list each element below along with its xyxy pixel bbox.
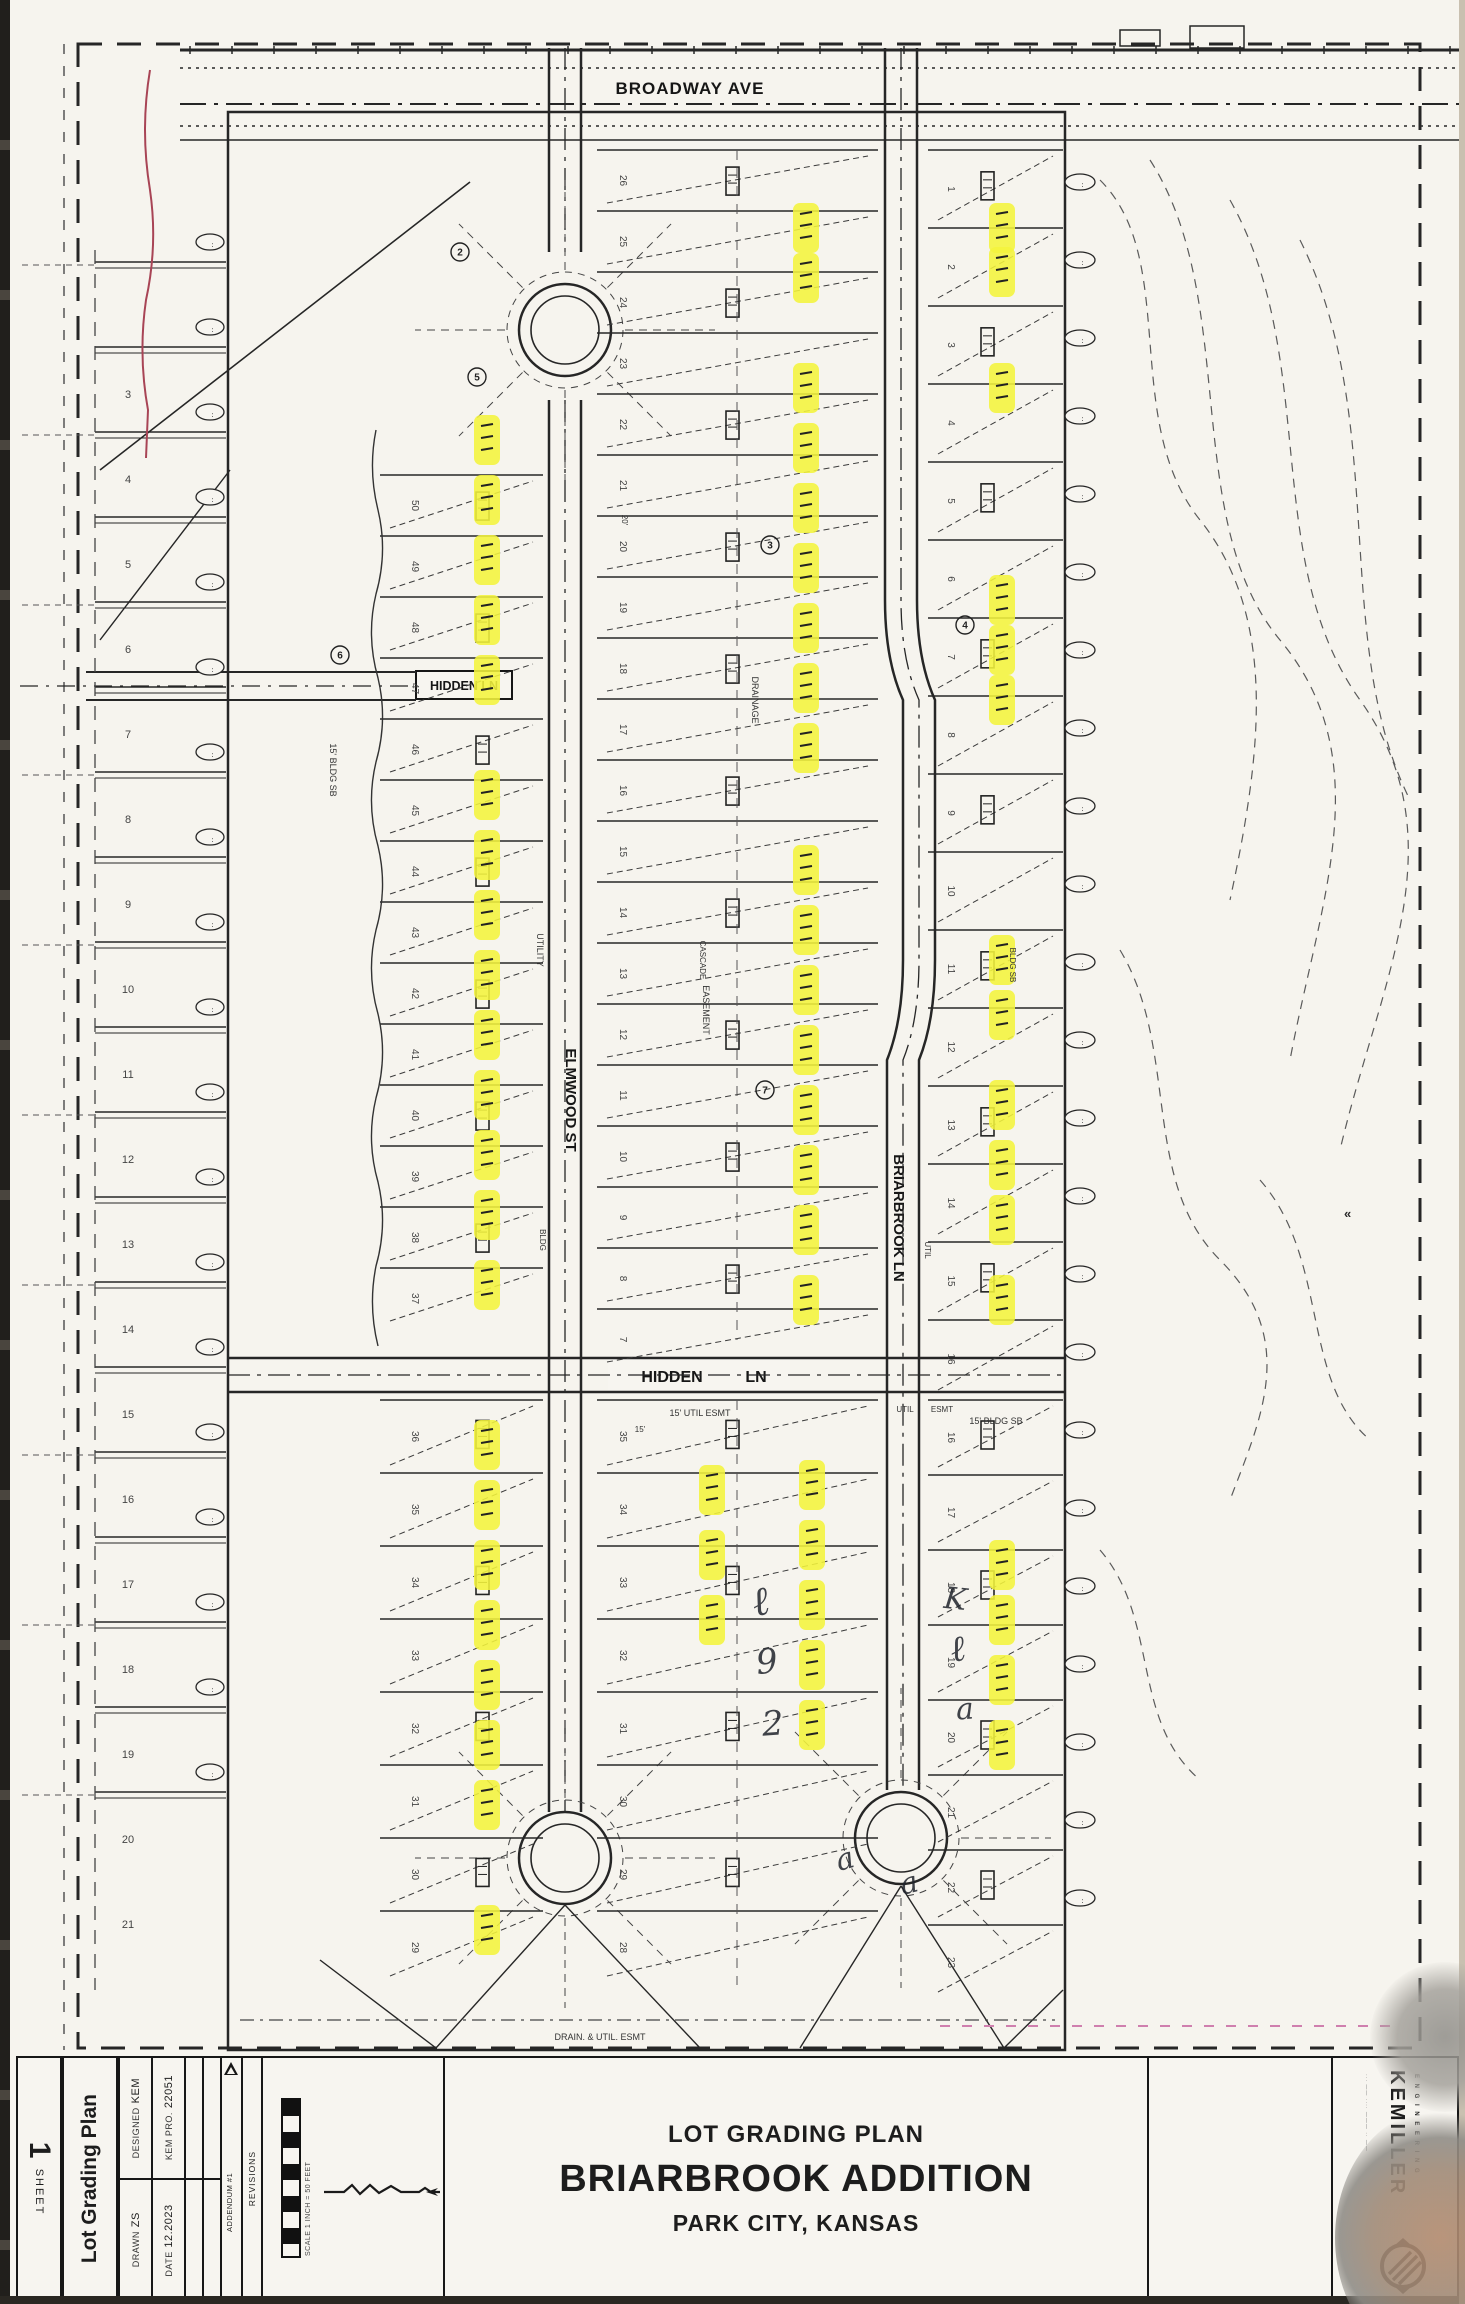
project-label: KEM PRO.: [164, 2113, 174, 2161]
empty-field-cell: [202, 2056, 222, 2180]
tiny-label: ··: [208, 582, 217, 587]
handwritten-pen-mark: a: [955, 1691, 975, 1727]
briarbrook-ln-label: BRIARBROOK LN: [890, 1154, 907, 1282]
contour: [1230, 200, 1408, 1150]
lot-number: 16: [617, 785, 628, 797]
lot-number: 49: [409, 561, 420, 573]
highlight-swatch: [474, 595, 500, 645]
easement-label: 15' BLDG SB: [328, 743, 338, 796]
highlight-swatch: [474, 1660, 500, 1710]
highlight-swatch: [793, 1275, 819, 1325]
lot-number: 18: [617, 663, 628, 675]
cul-de-sac: [531, 1824, 599, 1892]
lot-number: 9: [617, 1215, 628, 1221]
plan-line: [100, 182, 470, 470]
highlight-tag: [793, 1275, 819, 1325]
tiny-label: ··: [1078, 416, 1087, 421]
highlight-tag: [474, 830, 500, 880]
lot-number: 45: [409, 805, 420, 817]
grade-pad: [981, 172, 994, 200]
hidden-ln-mid-label-a: HIDDEN: [641, 1369, 702, 1386]
revision-entry: ADDENDUM #1: [225, 2082, 234, 2232]
contour: [1120, 950, 1267, 1500]
scan-edge-bottom: [0, 2296, 1465, 2304]
cul-de-sac: [519, 1812, 611, 1904]
highlight-tag: [474, 1720, 500, 1770]
highlight-tag: [793, 663, 819, 713]
empty-field-cell: [184, 2056, 204, 2180]
tiny-label: ··: [1078, 1040, 1087, 1045]
easement-label: 20': [620, 515, 629, 526]
lot-number: 4: [945, 420, 956, 426]
cul-de-sac: [519, 284, 611, 376]
highlight-tag: [474, 1780, 500, 1830]
highlight-tag: [474, 1600, 500, 1650]
contour: [1100, 180, 1256, 900]
highlight-swatch: [793, 603, 819, 653]
tiny-label: ··: [1078, 260, 1087, 265]
lot-number: 47: [409, 683, 420, 695]
lot-number: 28: [617, 1942, 628, 1954]
lot-number: 35: [617, 1431, 628, 1443]
highlight-swatch: [989, 1720, 1015, 1770]
contour: [1260, 1180, 1370, 1440]
tiny-label: ··: [208, 327, 217, 332]
radial-lot-line: [607, 1752, 671, 1816]
highlight-swatch: [474, 950, 500, 1000]
highlight-tag: [989, 675, 1015, 725]
lot-number: 44: [409, 866, 420, 878]
highlight-swatch: [474, 415, 500, 465]
easement-label: CASCADE: [698, 941, 707, 980]
cul-de-sac-easement: [507, 272, 623, 388]
adjacent-lot-number: 12: [122, 1154, 134, 1166]
red-pen-line: [142, 70, 153, 458]
highlight-tag: [474, 655, 500, 705]
tiny-label: ··: [208, 1602, 217, 1607]
lot-number: 21: [617, 480, 628, 492]
lot-number: 29: [617, 1869, 628, 1881]
highlight-tag: [474, 1905, 500, 1955]
lot-number: 13: [617, 968, 628, 980]
designed-value: KEM: [130, 2078, 142, 2103]
highlight-tag: [474, 1010, 500, 1060]
lot-number: 2: [945, 264, 956, 270]
highlight-swatch: [474, 535, 500, 585]
lot-number: 22: [617, 419, 628, 431]
revisions-header: REVISIONS: [247, 2151, 257, 2206]
project-title: BRIARBROOK ADDITION: [559, 2158, 1033, 2201]
revision-triangle-inner: [227, 2067, 235, 2074]
easement-label: UTILITY: [535, 933, 545, 967]
highlight-tag: [793, 203, 819, 253]
plan-line: [565, 1905, 700, 2048]
highlight-swatch: [699, 1530, 725, 1580]
highlight-tag: [793, 905, 819, 955]
highlight-swatch: [793, 1205, 819, 1255]
adjacent-lot-number: 7: [125, 729, 131, 741]
highlight-tag: [799, 1460, 825, 1510]
lot-number: 7: [945, 654, 956, 660]
circled-number-text: 4: [962, 621, 968, 632]
highlight-swatch: [474, 770, 500, 820]
highlight-tag: [474, 1540, 500, 1590]
tiny-label: ··: [1078, 1664, 1087, 1669]
highlight-tag: [799, 1520, 825, 1570]
highlight-tag: [989, 1140, 1015, 1190]
subdivision-outline: [228, 112, 1065, 2050]
highlight-swatch: [989, 1140, 1015, 1190]
lot-number: 41: [409, 1049, 420, 1061]
plat-boundary: [64, 44, 1420, 2050]
lot-number: 12: [617, 1029, 628, 1041]
scale-squiggle: [322, 2176, 442, 2206]
highlight-swatch: [474, 1780, 500, 1830]
highlight-swatch: [793, 543, 819, 593]
lot-number: 37: [409, 1293, 420, 1305]
highlight-tag: [793, 253, 819, 303]
adjacent-lot-number: 9: [125, 899, 131, 911]
tiny-label: ··: [208, 1772, 217, 1777]
highlight-tag: [989, 1195, 1015, 1245]
highlight-swatch: [793, 1025, 819, 1075]
highlight-tag: [799, 1700, 825, 1750]
revision-date: 04.17.2024: [225, 2236, 234, 2304]
tiny-label: ··: [208, 497, 217, 502]
tiny-label: ··: [1078, 884, 1087, 889]
grade-pad: [981, 796, 994, 824]
lot-number: 25: [617, 236, 628, 248]
highlight-tag: [989, 575, 1015, 625]
highlight-tag: [793, 483, 819, 533]
highlight-swatch: [699, 1465, 725, 1515]
easement-label: DRAINAGE: [750, 676, 760, 723]
adjacent-lot-number: 13: [122, 1239, 134, 1251]
highlight-swatch: [989, 1195, 1015, 1245]
drawn-cell: DRAWN ZS: [118, 2178, 153, 2302]
roads: [20, 26, 1460, 2008]
highlight-tag: [474, 1070, 500, 1120]
drainage-arrow: [607, 644, 868, 691]
tiny-label: ··: [208, 1177, 217, 1182]
grade-pad: [981, 484, 994, 512]
lot-number: 17: [945, 1507, 956, 1519]
adjacent-lot-number: 18: [122, 1664, 134, 1676]
lot-number: 43: [409, 927, 420, 939]
date-label: DATE: [164, 2251, 174, 2276]
adjacent-lot-number: 10: [122, 984, 134, 996]
highlight-tag: [799, 1580, 825, 1630]
lot-number: 24: [617, 297, 628, 309]
lot-number: 38: [409, 1232, 420, 1244]
lot-number: 19: [617, 602, 628, 614]
handwritten-pen-mark: 2: [761, 1703, 785, 1744]
circled-number-text: 7: [762, 1086, 768, 1097]
project-cell: KEM PRO. 22051: [151, 2056, 186, 2180]
sidebar-title: Lot Grading Plan: [78, 2094, 102, 2263]
lot-number: 15: [945, 1275, 956, 1287]
adjacent-lot-number: 21: [122, 1919, 134, 1931]
highlight-tag: [474, 415, 500, 465]
date-cell: DATE 12.2023: [151, 2178, 186, 2302]
plan-line: [436, 1905, 565, 2048]
lot-lines: [22, 150, 1063, 2048]
highlight-tag: [989, 1595, 1015, 1645]
empty-field-cell: [202, 2178, 222, 2302]
date-value: 12.2023: [163, 2204, 175, 2247]
contour: [1100, 1550, 1200, 1780]
lot-number: 1: [945, 186, 956, 192]
tiny-label: ··: [208, 1092, 217, 1097]
highlight-swatch: [989, 363, 1015, 413]
highlight-swatch: [799, 1640, 825, 1690]
handwritten-pen-mark: 9: [754, 1641, 780, 1683]
tiny-label: ··: [1078, 728, 1087, 733]
briarbrook-edge-e: [917, 48, 935, 1790]
adjacent-lot-number: 3: [125, 389, 131, 401]
highlight-tag: [699, 1530, 725, 1580]
highlight-swatch: [799, 1580, 825, 1630]
highlight-tag: [989, 1080, 1015, 1130]
cul-de-sac-easement: [507, 1800, 623, 1916]
lot-number: 12: [945, 1041, 956, 1053]
highlight-swatch: [799, 1520, 825, 1570]
tiny-label: ··: [208, 1432, 217, 1437]
plan-type-label: LOT GRADING PLAN: [668, 2121, 924, 2149]
highlight-swatch: [793, 1085, 819, 1135]
revision-entry-cell: ADDENDUM #1 04.17.2024: [220, 2056, 243, 2302]
tiny-label: ··: [1078, 806, 1087, 811]
adjacent-lot-number: 14: [122, 1324, 134, 1336]
highlight-swatch: [793, 363, 819, 413]
contour: [1150, 160, 1335, 1060]
lot-number: 8: [945, 732, 956, 738]
radial-lot-line: [795, 1880, 859, 1944]
highlight-tag: [793, 1025, 819, 1075]
highlight-swatch: [989, 1655, 1015, 1705]
lot-number: 3: [945, 342, 956, 348]
highlight-swatch: [474, 1720, 500, 1770]
lot-number: 16: [945, 1432, 956, 1444]
highlight-tag: [989, 363, 1015, 413]
edge-mark: «: [1344, 1206, 1351, 1221]
revisions-header-cell: REVISIONS: [241, 2056, 263, 2302]
lot-number: 6: [945, 576, 956, 582]
tiny-label: ··: [1078, 182, 1087, 187]
highlight-tag: [699, 1595, 725, 1645]
seal-panel: [1147, 2056, 1333, 2302]
easement-label: BLDG: [538, 1229, 547, 1251]
highlight-swatch: [474, 1600, 500, 1650]
scan-edge-left: [0, 0, 10, 2304]
plat-dashed-boundary: [78, 44, 1420, 2048]
tiny-label: ··: [1078, 962, 1087, 967]
highlight-tag: [989, 1275, 1015, 1325]
lot-number: 9: [945, 810, 956, 816]
highlight-swatch: [989, 203, 1015, 253]
tiny-label: ··: [1078, 1430, 1087, 1435]
lot-number: 32: [617, 1650, 628, 1662]
lot-number: 21: [945, 1807, 956, 1819]
highlight-tag: [474, 770, 500, 820]
highlight-swatch: [793, 905, 819, 955]
lot-number: 46: [409, 744, 420, 756]
lot-number: 48: [409, 622, 420, 634]
highlight-swatch: [474, 1010, 500, 1060]
lot-number: 33: [409, 1650, 420, 1662]
lot-number: 23: [617, 358, 628, 370]
easement-label: 15' BLDG SB: [969, 1416, 1022, 1426]
lot-number: 8: [617, 1276, 628, 1282]
highlight-swatch: [474, 655, 500, 705]
grade-pad: [981, 328, 994, 356]
tiny-label: ··: [1078, 1586, 1087, 1591]
cul-de-sac: [531, 296, 599, 364]
highlight-swatch: [474, 830, 500, 880]
lot-number: 50: [409, 500, 420, 512]
lot-number: 15: [617, 846, 628, 858]
highlight-swatch: [989, 625, 1015, 675]
drawn-label: DRAWN: [131, 2231, 141, 2267]
highlight-swatch: [699, 1595, 725, 1645]
highlight-tag: [989, 1540, 1015, 1590]
easement-label: DRAIN. & UTIL. ESMT: [554, 2032, 646, 2042]
broadway-ave-label: BROADWAY AVE: [616, 79, 765, 98]
highlight-tag: [793, 603, 819, 653]
highlight-tag: [793, 1145, 819, 1195]
tiny-label: ··: [208, 1687, 217, 1692]
highlight-swatch: [989, 990, 1015, 1040]
lot-number: 16: [945, 1353, 956, 1365]
lot-number: 30: [409, 1869, 420, 1881]
project-value: 22051: [163, 2075, 175, 2108]
highlight-tag: [989, 1720, 1015, 1770]
highlight-swatch: [793, 483, 819, 533]
lot-number: 10: [945, 885, 956, 897]
easement-label: BLDG SB: [1008, 948, 1017, 983]
lot-number: 30: [617, 1796, 628, 1808]
hidden-ln-mid-label-b: LN: [745, 1369, 766, 1386]
lot-number: 42: [409, 988, 420, 1000]
lot-number: 39: [409, 1171, 420, 1183]
highlight-tag: [474, 1480, 500, 1530]
tiny-label: ··: [1078, 494, 1087, 499]
highlight-swatch: [799, 1700, 825, 1750]
lot-number: 29: [409, 1942, 420, 1954]
tiny-label: ··: [208, 1347, 217, 1352]
highlight-tag: [474, 1130, 500, 1180]
highlight-swatch: [793, 423, 819, 473]
sheet-number-cell: SHEET 1: [16, 2056, 62, 2302]
lot-number: 36: [409, 1431, 420, 1443]
lot-number: 11: [617, 1090, 628, 1101]
radial-lot-line: [607, 372, 671, 436]
tiny-label: ··: [208, 922, 217, 927]
radial-lot-line: [607, 224, 671, 288]
tiny-label: ··: [208, 1517, 217, 1522]
contour: [1300, 240, 1410, 800]
circled-number-text: 3: [767, 541, 773, 552]
adjacent-lot-number: 4: [125, 474, 131, 486]
plan-line: [320, 1960, 436, 2048]
highlight-swatch: [474, 890, 500, 940]
highlight-tag: [474, 1660, 500, 1710]
tiny-label: ··: [1078, 1274, 1087, 1279]
tiny-label: ··: [1078, 1196, 1087, 1201]
drainage-arrow: [607, 949, 868, 996]
designed-label: DESIGNED: [131, 2107, 141, 2158]
highlight-swatch: [989, 1275, 1015, 1325]
lot-number: 23: [945, 1957, 956, 1969]
lot-number: 5: [945, 498, 956, 504]
highlight-tag: [474, 950, 500, 1000]
adjacent-lot-number: 11: [122, 1069, 133, 1081]
highlight-swatch: [474, 1130, 500, 1180]
highlight-swatch: [989, 675, 1015, 725]
highlight-tag: [793, 965, 819, 1015]
highlight-tag: [989, 990, 1015, 1040]
tiny-label: ··: [208, 1007, 217, 1012]
scan-edge-right: [1459, 0, 1465, 2304]
scale-bar: [281, 2098, 301, 2258]
drainage-arrow: [607, 1132, 868, 1179]
easement-label: EASEMENT: [701, 985, 711, 1035]
lot-number: 10: [617, 1151, 628, 1163]
circled-number-text: 2: [457, 248, 463, 259]
highlight-swatch: [793, 723, 819, 773]
highlight-swatch: [793, 1145, 819, 1195]
tiny-label: ··: [1078, 1898, 1087, 1903]
radial-lot-line: [607, 1900, 671, 1964]
highlight-tag: [474, 1260, 500, 1310]
designed-cell: DESIGNED KEM: [118, 2056, 153, 2180]
tiny-label: ··: [1078, 1820, 1087, 1825]
highlight-tag: [699, 1465, 725, 1515]
contour-lines: [1100, 160, 1410, 1780]
tiny-label: ··: [1078, 1352, 1087, 1357]
lot-number: 26: [617, 175, 628, 187]
adjacent-lot-number: 16: [122, 1494, 134, 1506]
drainage-arrow: [607, 339, 868, 386]
tiny-label: ··: [1078, 338, 1087, 343]
highlight-tag: [793, 845, 819, 895]
highlight-tag: [793, 363, 819, 413]
highlight-tag: [474, 1190, 500, 1240]
highlight-swatch: [989, 247, 1015, 297]
tiny-label: ··: [208, 752, 217, 757]
grade-pad: [981, 1871, 994, 1899]
project-location: PARK CITY, KANSAS: [673, 2210, 920, 2237]
lot-number: 33: [617, 1577, 628, 1589]
highlight-swatch: [474, 1260, 500, 1310]
highlight-tag: [793, 1085, 819, 1135]
easement-label: 15' UTIL ESMT: [670, 1408, 731, 1418]
highlight-swatch: [474, 1420, 500, 1470]
highlight-tag: [989, 247, 1015, 297]
scanned-sheet: BROADWAY AVE ELMWOOD ST BRIARBROOK LN HI…: [0, 0, 1465, 2304]
sheet-label: SHEET: [33, 2169, 45, 2216]
drawn-value: ZS: [130, 2212, 142, 2227]
lot-number: 11: [945, 964, 956, 975]
creek-line: [371, 430, 382, 1346]
tiny-label: ··: [208, 412, 217, 417]
tiny-label: ··: [208, 242, 217, 247]
adjacent-lot-number: 8: [125, 814, 131, 826]
highlight-tag: [793, 723, 819, 773]
highlight-swatch: [474, 1070, 500, 1120]
highlight-tag: [474, 535, 500, 585]
tiny-label: ··: [208, 667, 217, 672]
